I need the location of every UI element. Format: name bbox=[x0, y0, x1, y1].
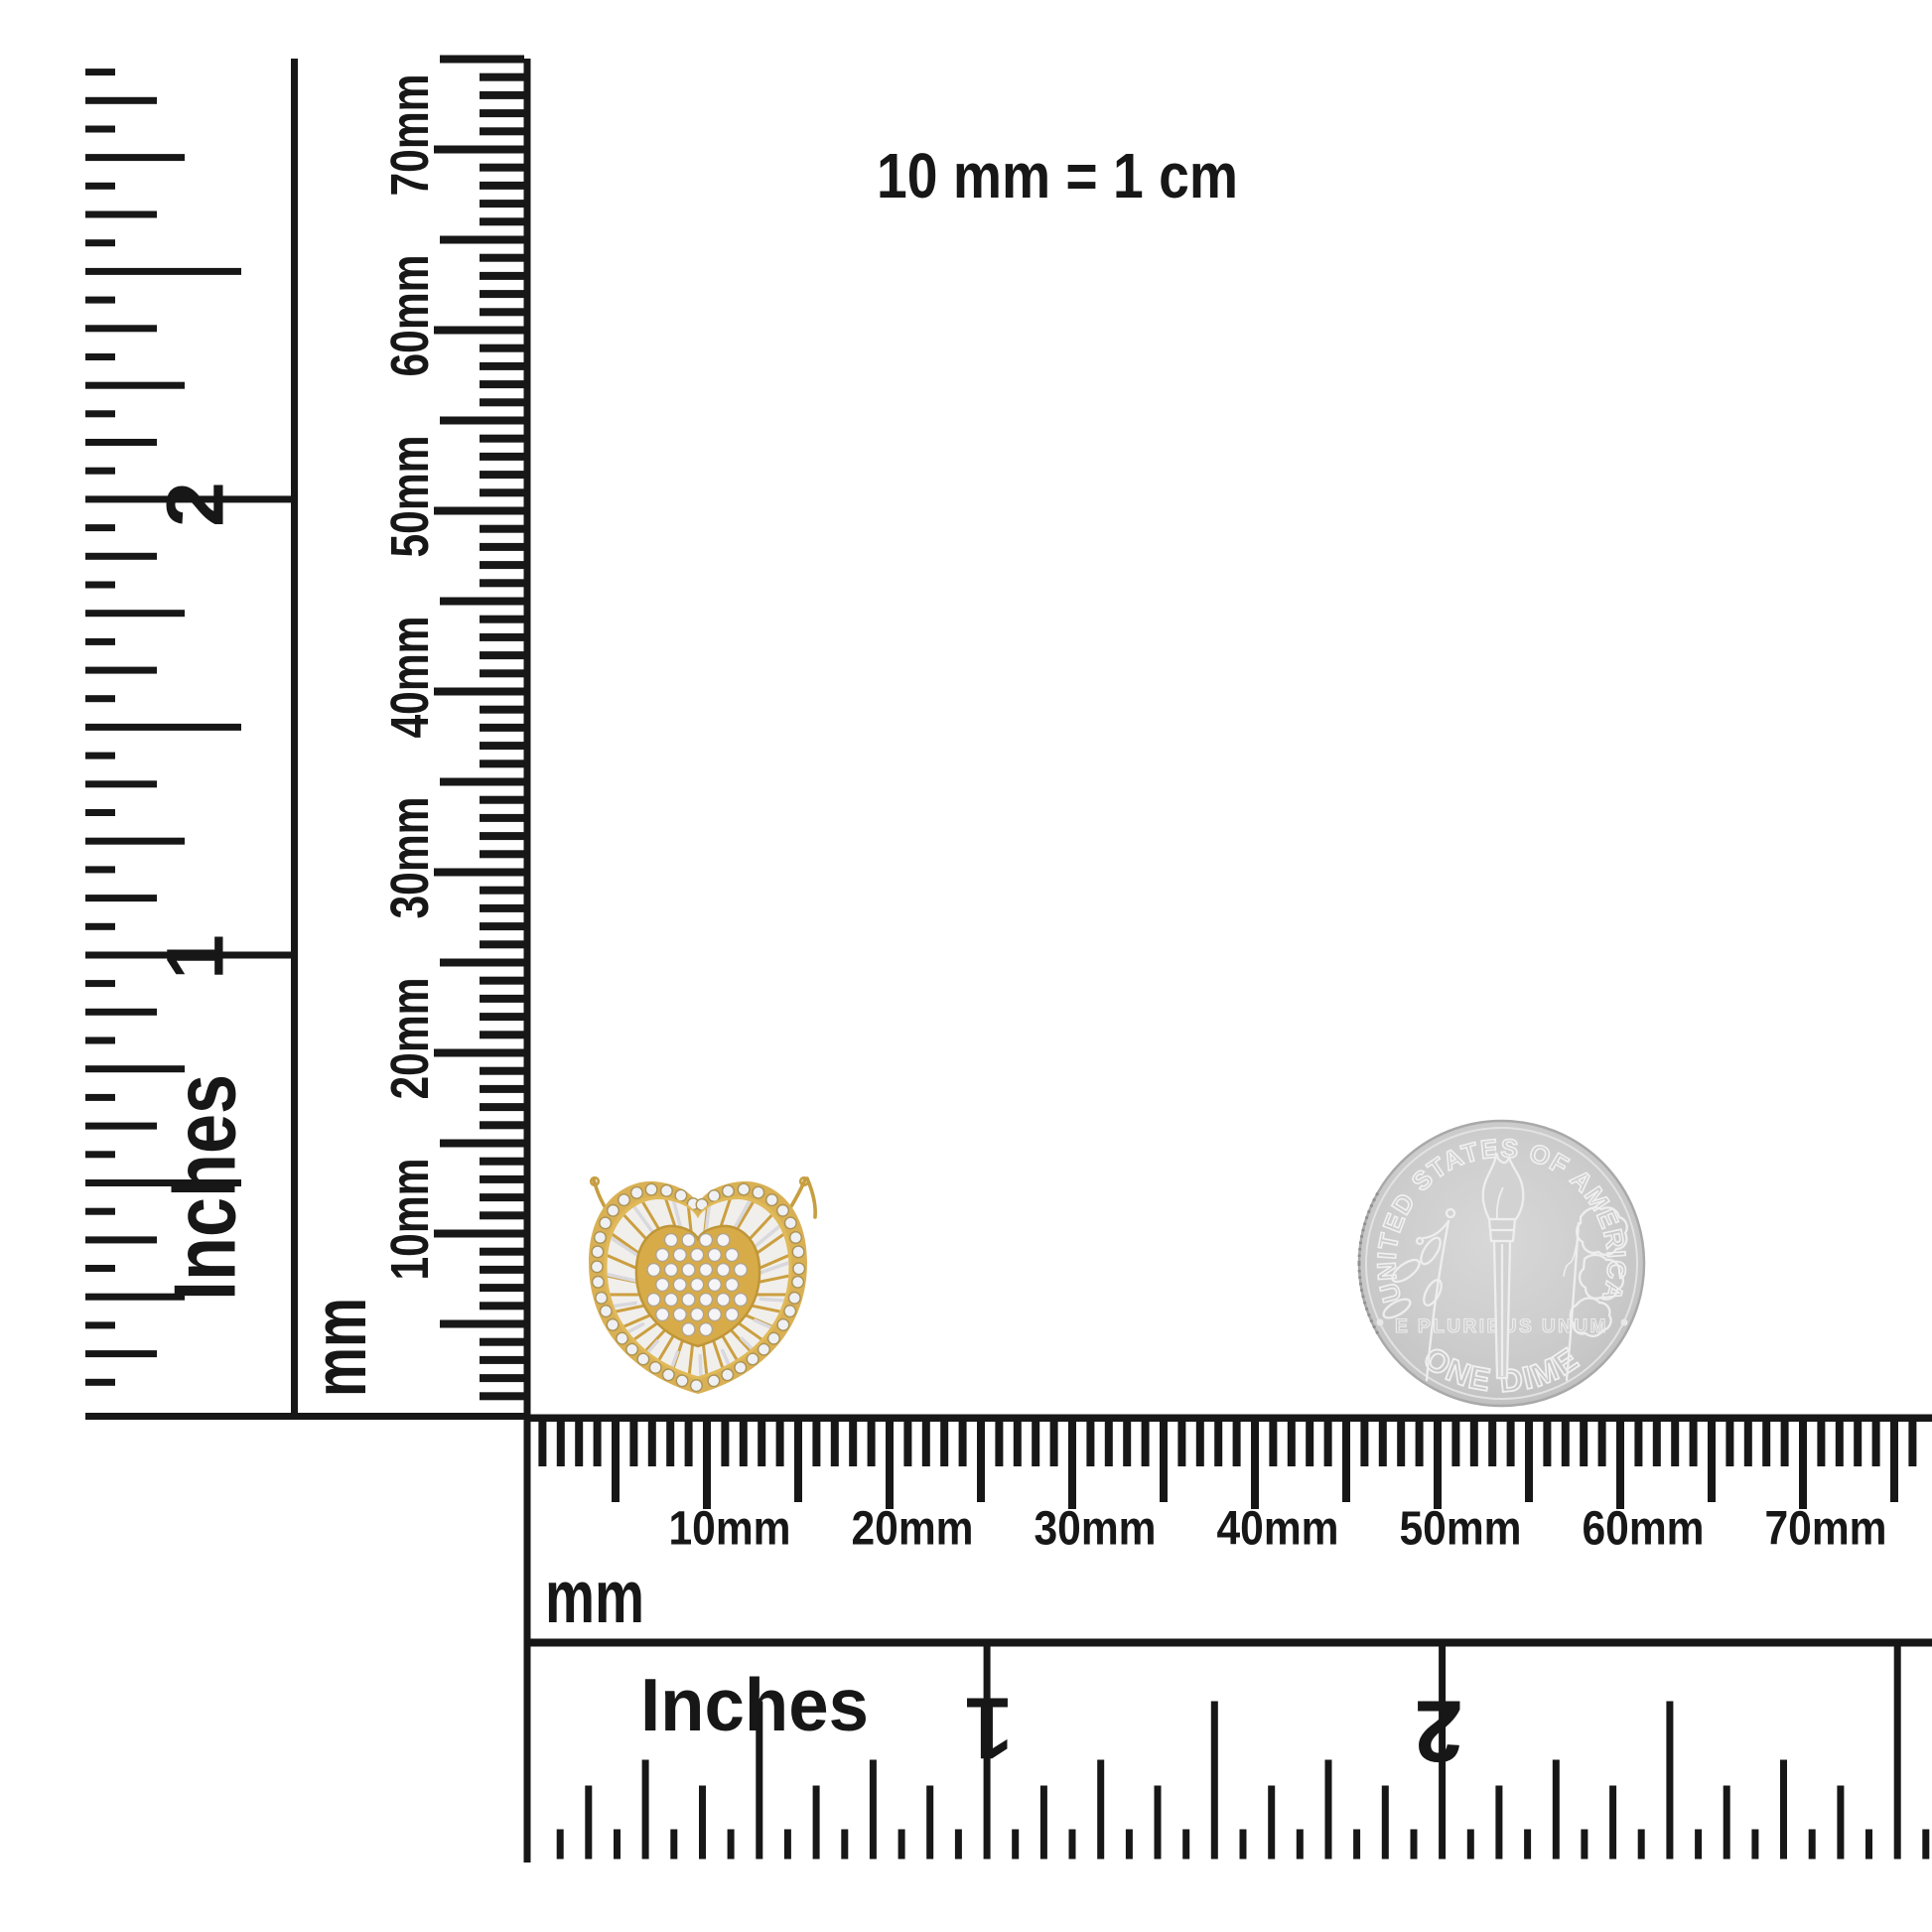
svg-text:20mm: 20mm bbox=[380, 978, 440, 1100]
svg-text:mm: mm bbox=[545, 1555, 644, 1638]
svg-text:2: 2 bbox=[151, 482, 241, 527]
svg-text:10 mm = 1 cm: 10 mm = 1 cm bbox=[877, 140, 1238, 211]
svg-text:30mm: 30mm bbox=[1035, 1503, 1157, 1556]
svg-text:10mm: 10mm bbox=[669, 1503, 791, 1556]
svg-text:mm: mm bbox=[298, 1298, 381, 1397]
svg-text:10mm: 10mm bbox=[380, 1159, 440, 1281]
svg-text:2: 2 bbox=[1415, 1683, 1463, 1781]
svg-text:1: 1 bbox=[965, 1680, 1014, 1778]
svg-text:50mm: 50mm bbox=[1400, 1503, 1522, 1556]
svg-text:Inches: Inches bbox=[640, 1663, 869, 1746]
svg-text:60mm: 60mm bbox=[380, 255, 440, 377]
svg-text:20mm: 20mm bbox=[852, 1503, 974, 1556]
svg-text:40mm: 40mm bbox=[380, 617, 440, 739]
svg-text:40mm: 40mm bbox=[1217, 1503, 1339, 1556]
svg-text:50mm: 50mm bbox=[380, 436, 440, 558]
svg-text:60mm: 60mm bbox=[1583, 1503, 1705, 1556]
svg-text:70mm: 70mm bbox=[1765, 1503, 1887, 1556]
svg-text:Inches: Inches bbox=[156, 1074, 254, 1301]
svg-text:1: 1 bbox=[151, 934, 241, 980]
svg-text:70mm: 70mm bbox=[380, 74, 440, 197]
svg-text:30mm: 30mm bbox=[380, 797, 440, 919]
